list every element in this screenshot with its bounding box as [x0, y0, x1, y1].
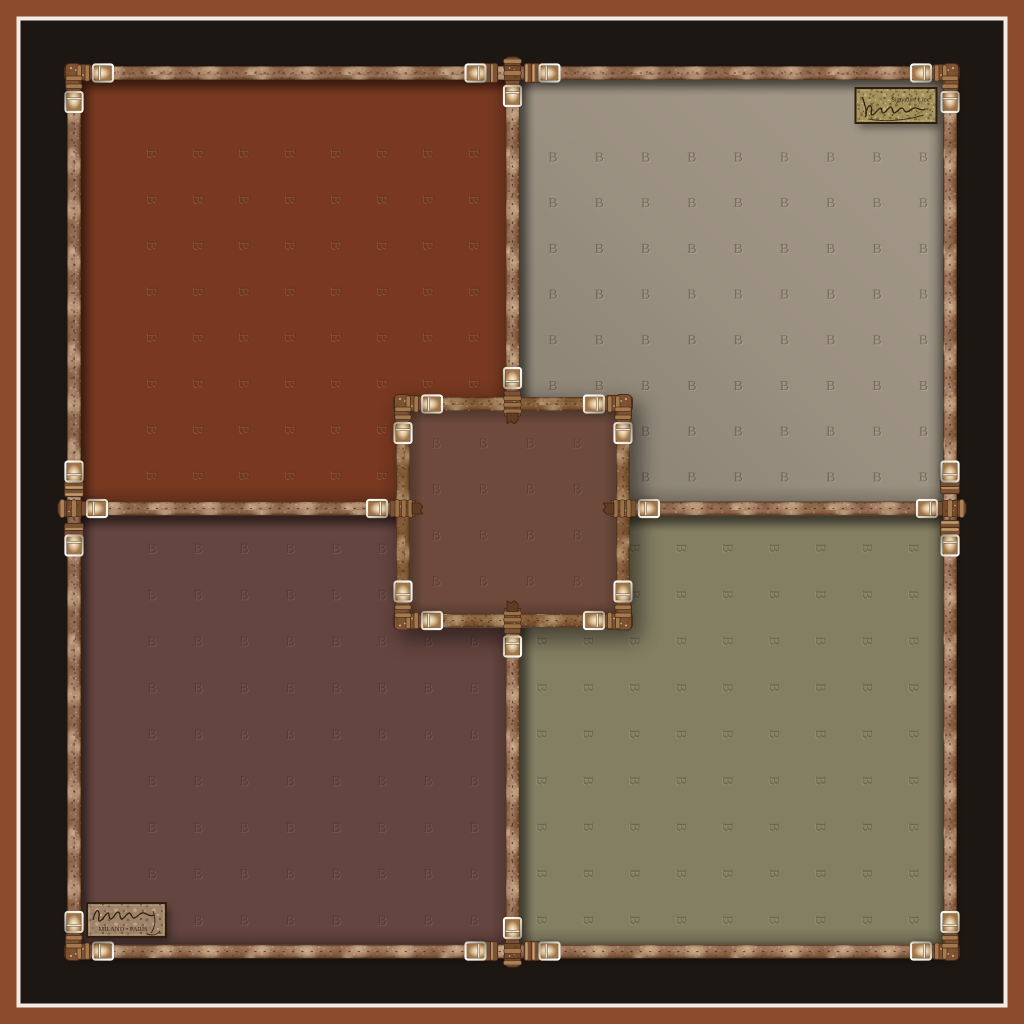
svg-text:MILANO • PARIS: MILANO • PARIS	[98, 926, 148, 933]
svg-text:Signature Line: Signature Line	[891, 97, 930, 104]
